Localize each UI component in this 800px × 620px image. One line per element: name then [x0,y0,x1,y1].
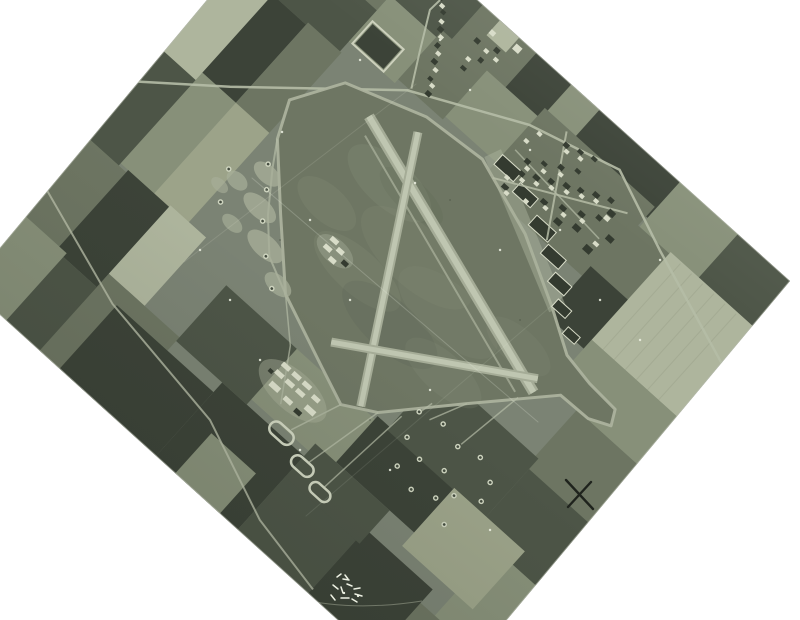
aerial-photo [0,0,800,620]
photo-print [0,0,800,620]
aerial-photo-canvas [0,0,800,620]
vignette [0,0,800,620]
